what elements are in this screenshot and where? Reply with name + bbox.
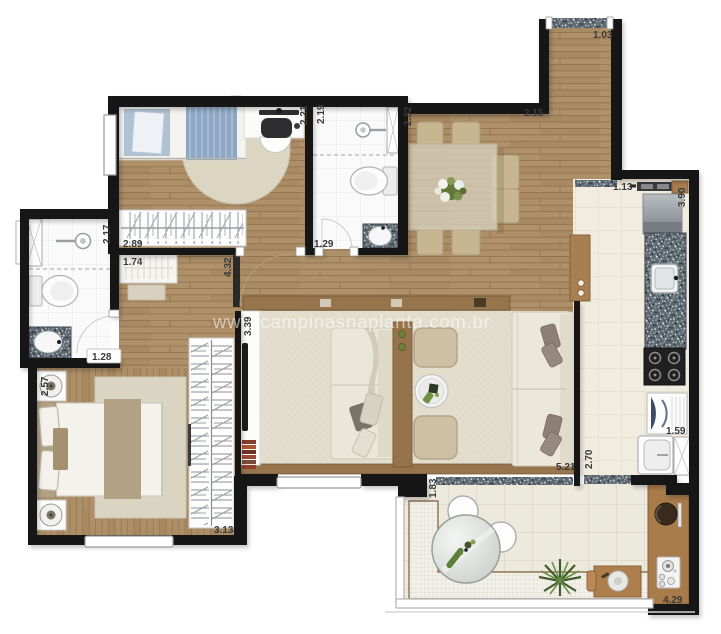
svg-text:2.70: 2.70 [584,449,595,469]
svg-text:2.89: 2.89 [123,239,143,250]
svg-text:2.57: 2.57 [40,376,51,396]
svg-text:4.29: 4.29 [663,595,683,606]
svg-text:3.13: 3.13 [214,525,234,536]
svg-text:2.32: 2.32 [403,106,414,126]
svg-text:1.03: 1.03 [593,30,613,41]
svg-text:1.59: 1.59 [666,426,686,437]
svg-text:3.39: 3.39 [243,316,254,336]
svg-text:2.17: 2.17 [102,224,113,244]
svg-text:1.13: 1.13 [613,182,633,193]
svg-text:1.74: 1.74 [123,257,143,268]
svg-text:1.29: 1.29 [314,239,334,250]
svg-text:2.21: 2.21 [299,105,310,125]
svg-text:5.21: 5.21 [556,462,576,473]
svg-text:2.19: 2.19 [316,104,327,124]
svg-text:3.90: 3.90 [677,187,688,207]
svg-text:4.32: 4.32 [223,257,234,277]
svg-text:1.83: 1.83 [428,478,439,498]
svg-text:2.15: 2.15 [524,108,544,119]
svg-text:1.28: 1.28 [92,352,112,363]
